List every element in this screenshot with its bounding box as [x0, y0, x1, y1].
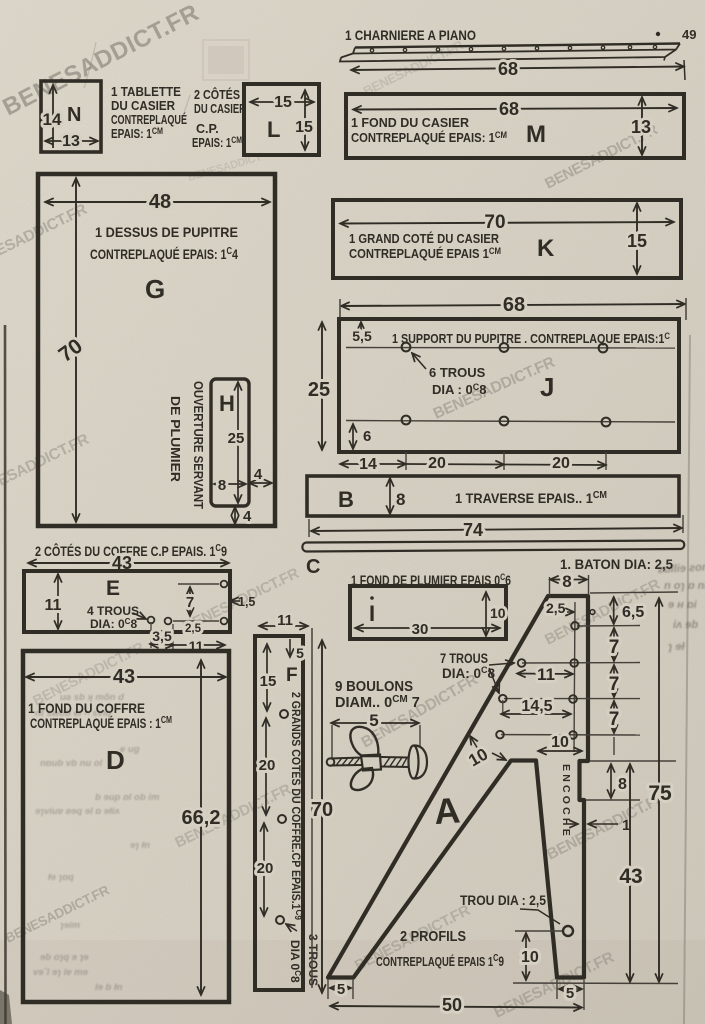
- svg-text:C.P.: C.P.: [196, 122, 219, 136]
- svg-text:7: 7: [609, 709, 620, 730]
- svg-text:1 GRAND COTÉ DU CASIER: 1 GRAND COTÉ DU CASIER: [349, 231, 500, 246]
- svg-text:15: 15: [274, 94, 292, 111]
- svg-text:C: C: [306, 556, 320, 578]
- svg-text:11: 11: [537, 665, 555, 684]
- svg-text:43: 43: [619, 865, 642, 888]
- svg-text:DIAM.. 0CM 7: DIAM.. 0CM 7: [335, 694, 420, 711]
- svg-text:49: 49: [682, 27, 696, 42]
- svg-text:20: 20: [257, 860, 274, 877]
- svg-text:3 TROUS: 3 TROUS: [306, 934, 320, 986]
- svg-text:vɘˆl ɘɿ iɐ mɘ: vɘˆl ɘɿ iɐ mɘ: [33, 967, 88, 978]
- svg-text:11: 11: [45, 597, 62, 614]
- svg-text:15: 15: [627, 231, 647, 251]
- svg-text:5,5: 5,5: [352, 328, 372, 344]
- svg-text:8: 8: [218, 477, 226, 494]
- svg-text:70: 70: [484, 212, 505, 233]
- svg-text:DIA: 0C8: DIA: 0C8: [90, 617, 137, 631]
- svg-text:1 DESSUS DE PUPITRE: 1 DESSUS DE PUPITRE: [95, 224, 238, 240]
- svg-text:68: 68: [499, 99, 519, 119]
- svg-text:I: I: [369, 601, 375, 626]
- svg-text:14,5: 14,5: [521, 698, 552, 715]
- svg-text:14: 14: [359, 456, 377, 473]
- svg-text:10: 10: [490, 605, 506, 621]
- svg-text:8: 8: [396, 490, 405, 509]
- svg-text:ua sb ʞ mõn d: ua sb ʞ mõn d: [60, 692, 124, 703]
- svg-text:b ɘup ɒl ob im: b ɘup ɒl ob im: [95, 792, 160, 803]
- svg-text:20: 20: [552, 455, 570, 472]
- svg-text:ɘb oɿq ɘ ɿɘ: ɘb oɿq ɘ ɿɘ: [40, 952, 89, 963]
- svg-text:H: H: [219, 391, 235, 416]
- svg-text:1 CHARNIERE A PIANO: 1 CHARNIERE A PIANO: [345, 28, 476, 43]
- svg-text:8: 8: [618, 776, 627, 793]
- svg-text:9 BOULONS: 9 BOULONS: [335, 679, 413, 695]
- svg-text:7 TROUS: 7 TROUS: [440, 651, 488, 666]
- svg-text:DU CASIER: DU CASIER: [194, 102, 246, 116]
- svg-text:7: 7: [186, 594, 194, 611]
- svg-text:13: 13: [631, 117, 651, 137]
- svg-text:5: 5: [369, 711, 378, 730]
- svg-text:ɿɘim: ɿɘim: [60, 920, 81, 931]
- svg-text:nt swob el ˄ sviq: nt swob el ˄ sviq: [35, 708, 111, 719]
- svg-text:ENCOCHE: ENCOCHE: [560, 764, 572, 839]
- svg-text:1 TABLETTE: 1 TABLETTE: [111, 85, 181, 99]
- svg-text:2,5: 2,5: [185, 623, 202, 635]
- svg-text:1 FOND DU CASIER: 1 FOND DU CASIER: [351, 115, 470, 130]
- svg-text:15: 15: [260, 673, 277, 690]
- svg-text:48: 48: [149, 191, 171, 213]
- svg-text:1 SUPPORT DU PUPITRE . CONTREP: 1 SUPPORT DU PUPITRE . CONTREPLAQUE EPAI…: [392, 331, 670, 346]
- svg-text:68: 68: [503, 294, 525, 316]
- svg-text:OUVERTURE SERVANT: OUVERTURE SERVANT: [191, 381, 206, 509]
- svg-text:M: M: [526, 121, 546, 148]
- svg-text:74: 74: [463, 520, 483, 540]
- svg-text:CONTREPLAQUÉ EPAIS 1CM: CONTREPLAQUÉ EPAIS 1CM: [349, 246, 501, 261]
- svg-text:4: 4: [243, 508, 252, 525]
- svg-text:e ug: e ug: [120, 744, 140, 755]
- svg-text:CONTREPLAQUÉ EPAIS: 1CM: CONTREPLAQUÉ EPAIS: 1CM: [351, 130, 507, 145]
- svg-text:ɘ ʜ ɒi: ɘ ʜ ɒi: [668, 599, 698, 611]
- svg-text:TROU DIA : 2,5: TROU DIA : 2,5: [460, 893, 546, 908]
- svg-text:25: 25: [228, 430, 245, 447]
- svg-text:ƨɒlliɘ ƨon: ƨɒlliɘ ƨon: [658, 561, 705, 576]
- svg-text:DIA: 0C8: DIA: 0C8: [442, 665, 496, 681]
- svg-text:CONTREPLAQUÉ: CONTREPLAQUÉ: [111, 112, 187, 127]
- svg-text:50: 50: [442, 995, 462, 1015]
- svg-text:43: 43: [113, 666, 135, 688]
- svg-text:ƚɘ ɿɒq: ƚɘ ɿɒq: [48, 872, 74, 883]
- svg-text:J: J: [540, 372, 554, 402]
- svg-text:6 TROUS: 6 TROUS: [429, 365, 486, 380]
- svg-text:66,2: 66,2: [182, 807, 221, 829]
- svg-text:8: 8: [562, 572, 571, 591]
- svg-text:2,5: 2,5: [546, 600, 566, 616]
- svg-text:2 GRANDS COTÉS DU COFFRE.CP EP: 2 GRANDS COTÉS DU COFFRE.CP EPAIS.1C9: [289, 692, 304, 920]
- svg-text:68: 68: [498, 59, 518, 79]
- svg-text:ɘɿ ƚn: ɘɿ ƚn: [130, 840, 150, 851]
- svg-text:20: 20: [259, 757, 276, 774]
- svg-text:30: 30: [412, 621, 429, 638]
- svg-text:5: 5: [566, 985, 574, 1002]
- svg-text:10: 10: [551, 734, 569, 751]
- svg-text:E: E: [106, 577, 120, 600]
- svg-text:25: 25: [308, 379, 330, 401]
- svg-text:K: K: [537, 235, 555, 262]
- svg-text:iʌ ɘb: iʌ ɘb: [673, 619, 698, 631]
- svg-text:20: 20: [428, 455, 446, 472]
- svg-text:ɿ ɘƚ: ɿ ɘƚ: [668, 641, 685, 653]
- svg-text:7: 7: [609, 674, 620, 695]
- svg-text:14: 14: [43, 110, 62, 129]
- svg-text:DU CASIER: DU CASIER: [111, 99, 175, 113]
- svg-text:5: 5: [337, 981, 345, 998]
- svg-text:CONTREPLAQUÉ EPAIS 1C9: CONTREPLAQUÉ EPAIS 1C9: [376, 953, 504, 969]
- svg-text:F: F: [286, 665, 298, 686]
- svg-text:13: 13: [62, 133, 80, 150]
- svg-text:G: G: [145, 274, 165, 304]
- svg-text:DIA : 0C8: DIA : 0C8: [432, 382, 486, 397]
- svg-text:4: 4: [254, 466, 263, 483]
- svg-text:DIA 0C8: DIA 0C8: [288, 940, 302, 983]
- svg-text:5: 5: [296, 645, 304, 661]
- svg-text:B: B: [338, 487, 354, 512]
- svg-text:DE PLUMIER: DE PLUMIER: [168, 396, 183, 483]
- svg-text:6,5: 6,5: [622, 604, 644, 621]
- svg-text:6: 6: [363, 428, 371, 445]
- svg-text:70: 70: [311, 799, 333, 821]
- svg-text:3,5: 3,5: [152, 628, 172, 644]
- svg-text:L: L: [267, 117, 280, 142]
- svg-text:4 TROUS: 4 TROUS: [87, 604, 139, 618]
- svg-text:1 TRAVERSE EPAIS.. 1CM: 1 TRAVERSE EPAIS.. 1CM: [455, 490, 607, 506]
- svg-text:15: 15: [295, 119, 313, 136]
- svg-text:A: A: [433, 789, 462, 832]
- svg-text:N: N: [67, 104, 81, 126]
- svg-text:n oɿ ɒ nu: n oɿ ɒ nu: [664, 580, 705, 592]
- svg-text:nɒub vb nu ol: nɒub vb nu ol: [40, 758, 103, 769]
- svg-text:1,5: 1,5: [238, 595, 255, 609]
- svg-text:CONTREPLAQUÉ EPAIS: 1C4: CONTREPLAQUÉ EPAIS: 1C4: [90, 246, 238, 262]
- svg-text:11: 11: [277, 612, 293, 629]
- svg-text:lɘ b ƚn: lɘ b ƚn: [95, 982, 123, 993]
- svg-text:2 PROFILS: 2 PROFILS: [400, 928, 466, 945]
- svg-text:ɘɿviuɐ ʚɘq ɘl ɒ ɘƚiʌ: ɘɿviuɐ ʚɘq ɘl ɒ ɘƚiʌ: [35, 806, 120, 817]
- svg-text:75: 75: [648, 782, 672, 805]
- svg-text:1. BATON DIA: 2,5: 1. BATON DIA: 2,5: [560, 556, 673, 572]
- svg-text:2 CÔTÉS: 2 CÔTÉS: [194, 87, 240, 102]
- svg-text:10: 10: [521, 949, 539, 966]
- svg-text:7: 7: [609, 637, 620, 658]
